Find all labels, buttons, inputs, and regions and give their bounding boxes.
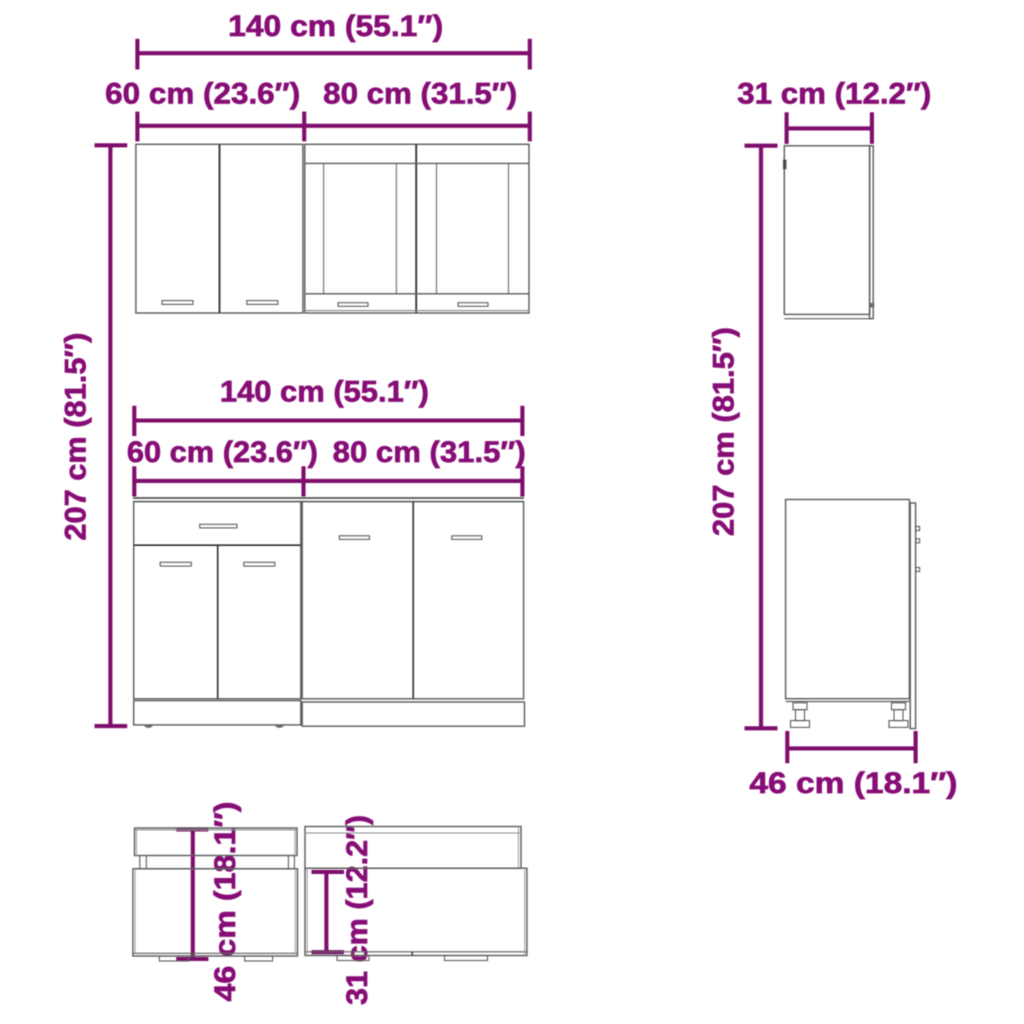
svg-text:80 cm (31.5″): 80 cm (31.5″): [323, 77, 517, 110]
svg-text:140 cm (55.1″): 140 cm (55.1″): [228, 10, 443, 43]
svg-text:80 cm (31.5″): 80 cm (31.5″): [333, 436, 526, 469]
svg-text:60 cm (23.6″): 60 cm (23.6″): [127, 436, 318, 469]
svg-text:60 cm (23.6″): 60 cm (23.6″): [105, 77, 300, 110]
svg-text:46 cm (18.1″): 46 cm (18.1″): [749, 767, 957, 800]
svg-text:31 cm (12.2″): 31 cm (12.2″): [737, 77, 931, 110]
svg-text:31 cm (12.2″): 31 cm (12.2″): [341, 815, 374, 1005]
svg-text:46 cm (18.1″): 46 cm (18.1″): [209, 802, 242, 1002]
svg-text:207 cm (81.5″): 207 cm (81.5″): [708, 327, 741, 536]
svg-text:140 cm (55.1″): 140 cm (55.1″): [220, 375, 429, 408]
svg-text:207 cm (81.5″): 207 cm (81.5″): [60, 333, 93, 541]
